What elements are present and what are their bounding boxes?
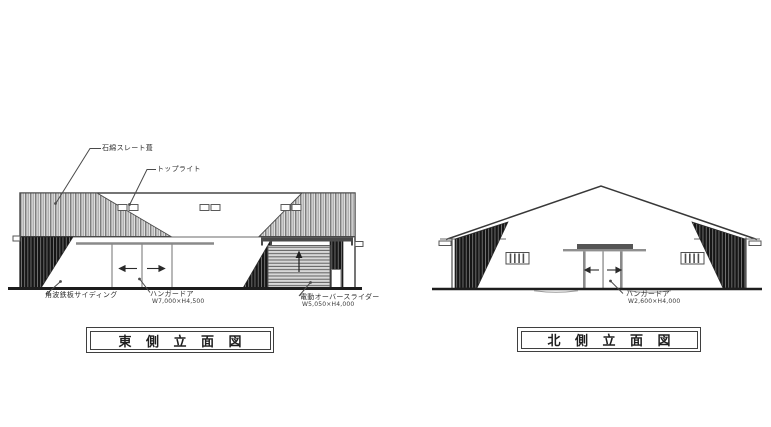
drawing-sheet: 石綿スレート葺 トップライト 角波鉄板サイディング ハンガードア W7,000×… xyxy=(0,0,771,427)
east-slider-lintel xyxy=(261,238,353,242)
north-hangar-door-label: ハンガードア W2,600×H4,000 xyxy=(626,290,680,306)
north-louver-vent-left xyxy=(506,253,529,265)
north-gutter-stub-left xyxy=(439,241,451,246)
north-hangar-door-size: W2,600×H4,000 xyxy=(626,298,680,306)
east-title: 東 側 立 面 図 xyxy=(90,331,271,350)
north-door-canopy xyxy=(577,244,633,249)
north-ground-contour-left xyxy=(534,291,578,293)
east-slider-lintel-end-right xyxy=(351,238,353,246)
east-toplight-label: トップライト xyxy=(157,165,201,173)
north-louver-vent-right xyxy=(681,253,704,265)
east-roof-label: 石綿スレート葺 xyxy=(102,144,153,152)
east-title-box: 東 側 立 面 図 xyxy=(86,327,274,353)
north-hangar-door-name: ハンガードア xyxy=(626,290,680,298)
east-hangar-door-size: W7,000×H4,500 xyxy=(150,298,204,306)
east-left-notch xyxy=(13,236,20,241)
east-slider-lintel-end-left xyxy=(261,238,263,246)
east-siding-label: 角波鉄板サイディング xyxy=(45,291,118,299)
east-gutter-stub xyxy=(355,242,363,247)
north-door-center-seam xyxy=(602,251,603,288)
north-title-box: 北 側 立 面 図 xyxy=(517,327,701,352)
east-man-door xyxy=(332,270,342,289)
north-elevation-drawing xyxy=(432,186,762,294)
east-slider-label: 電動オーバースライダー W5,050×H4,000 xyxy=(300,293,380,309)
east-slider-size: W5,050×H4,000 xyxy=(300,301,380,309)
east-hangar-door-label: ハンガードア W7,000×H4,500 xyxy=(150,290,204,306)
east-hangar-door-name: ハンガードア xyxy=(150,290,204,298)
north-door-canopy-shelf xyxy=(563,249,646,251)
elevation-lineart xyxy=(0,0,771,427)
north-title: 北 側 立 面 図 xyxy=(521,331,698,349)
east-slider-name: 電動オーバースライダー xyxy=(300,293,380,301)
north-gutter-stub-right xyxy=(749,241,761,246)
